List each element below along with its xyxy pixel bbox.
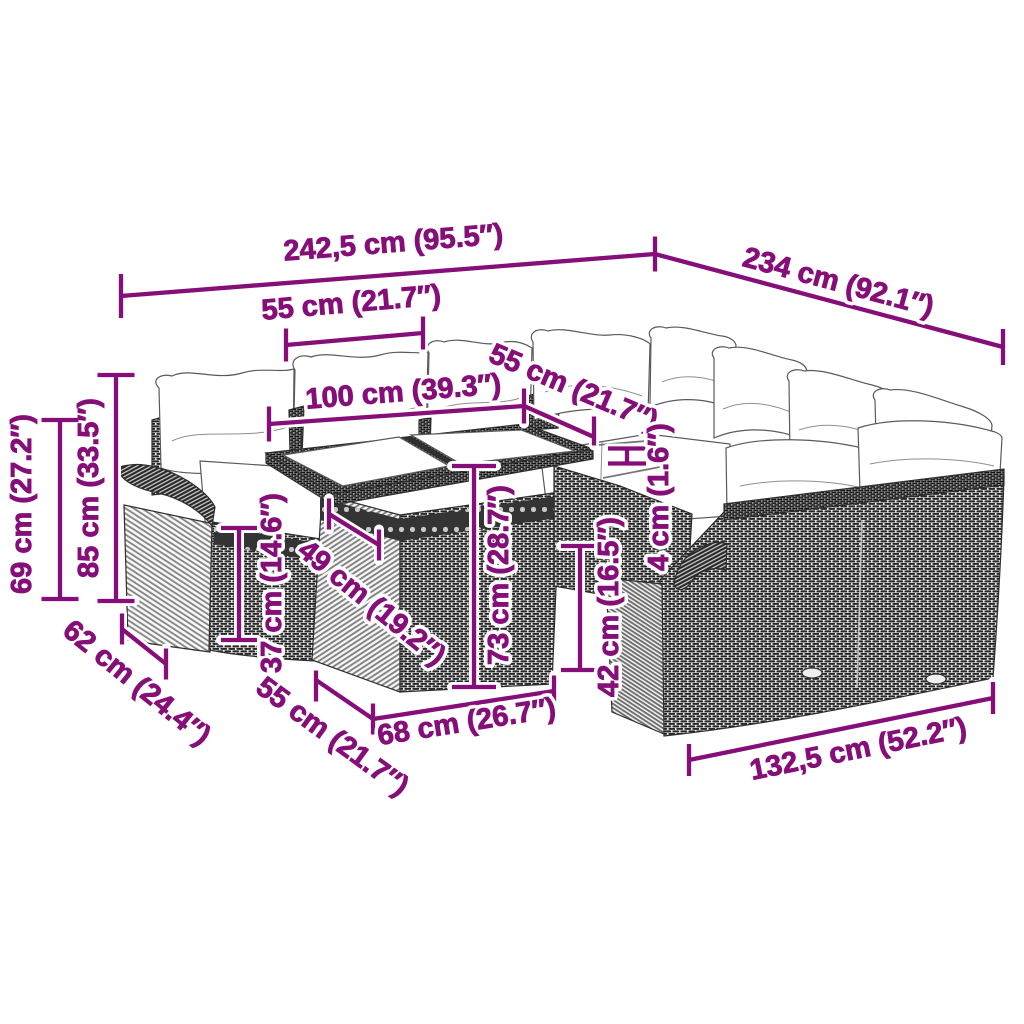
svg-text:4 cm (1.6″): 4 cm (1.6″) xyxy=(643,423,675,571)
svg-text:85 cm (33.5″): 85 cm (33.5″) xyxy=(73,398,105,578)
svg-text:37 cm (14.6″): 37 cm (14.6″) xyxy=(256,493,288,673)
svg-text:42 cm (16.5″): 42 cm (16.5″) xyxy=(593,517,625,697)
svg-text:69 cm (27.2″): 69 cm (27.2″) xyxy=(6,414,38,594)
svg-text:242,5 cm (95.5″): 242,5 cm (95.5″) xyxy=(282,218,504,267)
svg-text:73 cm (28.7″): 73 cm (28.7″) xyxy=(483,485,515,665)
